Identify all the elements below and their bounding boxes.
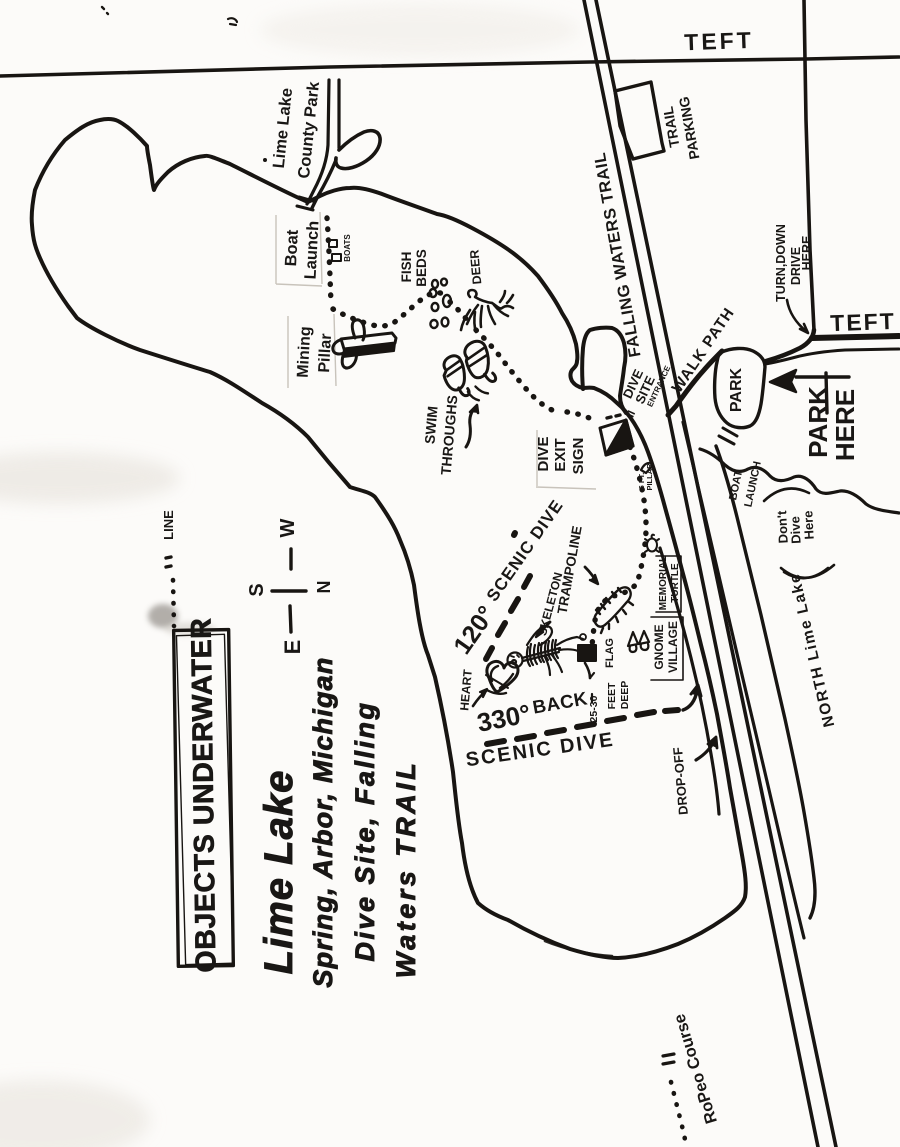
svg-text:VILLAGE: VILLAGE (666, 621, 680, 673)
svg-text:BOATS: BOATS (343, 234, 352, 262)
svg-text:Launch: Launch (301, 220, 322, 280)
svg-text:SIGN: SIGN (570, 438, 587, 475)
svg-text:FLAG: FLAG (604, 638, 616, 668)
svg-text:PARK: PARK (728, 367, 745, 412)
svg-text:Spring, Arbor, Michigan: Spring, Arbor, Michigan (308, 656, 338, 987)
svg-text:Dive Site, Falling: Dive Site, Falling (350, 700, 380, 961)
svg-text:TURN,DOWN: TURN,DOWN (774, 224, 788, 302)
svg-text:TEFT: TEFT (684, 27, 754, 55)
svg-text:Pillar: Pillar (316, 333, 335, 373)
svg-text:Lime Lake: Lime Lake (257, 770, 301, 975)
svg-text:DIVE: DIVE (535, 436, 552, 471)
svg-text:Waters TRAIL: Waters TRAIL (391, 760, 421, 979)
svg-text:Mining: Mining (295, 326, 315, 378)
svg-text:S: S (246, 583, 268, 596)
svg-text:Here: Here (800, 510, 816, 540)
svg-text:TURTLE: TURTLE (670, 563, 681, 603)
svg-text:Boat: Boat (282, 229, 302, 267)
svg-text:DEEP: DEEP (619, 681, 631, 710)
svg-text:HERE: HERE (800, 236, 814, 271)
svg-text:TEFT: TEFT (830, 308, 896, 336)
svg-text:PILLAR: PILLAR (645, 463, 654, 491)
svg-text:25-30: 25-30 (588, 695, 600, 722)
svg-text:E: E (280, 640, 305, 655)
svg-text:OBJECTS UNDERWATER: OBJECTS UNDERWATER (186, 617, 223, 972)
svg-text:W: W (277, 518, 299, 537)
svg-text:BEDS: BEDS (414, 249, 429, 287)
svg-text:FISH: FISH (399, 252, 414, 283)
svg-text:FEET: FEET (606, 682, 618, 709)
svg-text:N: N (314, 581, 334, 594)
svg-text:GNOME: GNOME (652, 624, 666, 669)
svg-text:SWIM: SWIM (421, 405, 440, 444)
svg-text:PARK: PARK (803, 386, 833, 458)
svg-text:EXIT: EXIT (552, 438, 569, 471)
svg-text:HERE: HERE (830, 389, 860, 461)
svg-text:MEMORIAL: MEMORIAL (658, 556, 669, 610)
svg-text:LINE: LINE (161, 510, 176, 540)
